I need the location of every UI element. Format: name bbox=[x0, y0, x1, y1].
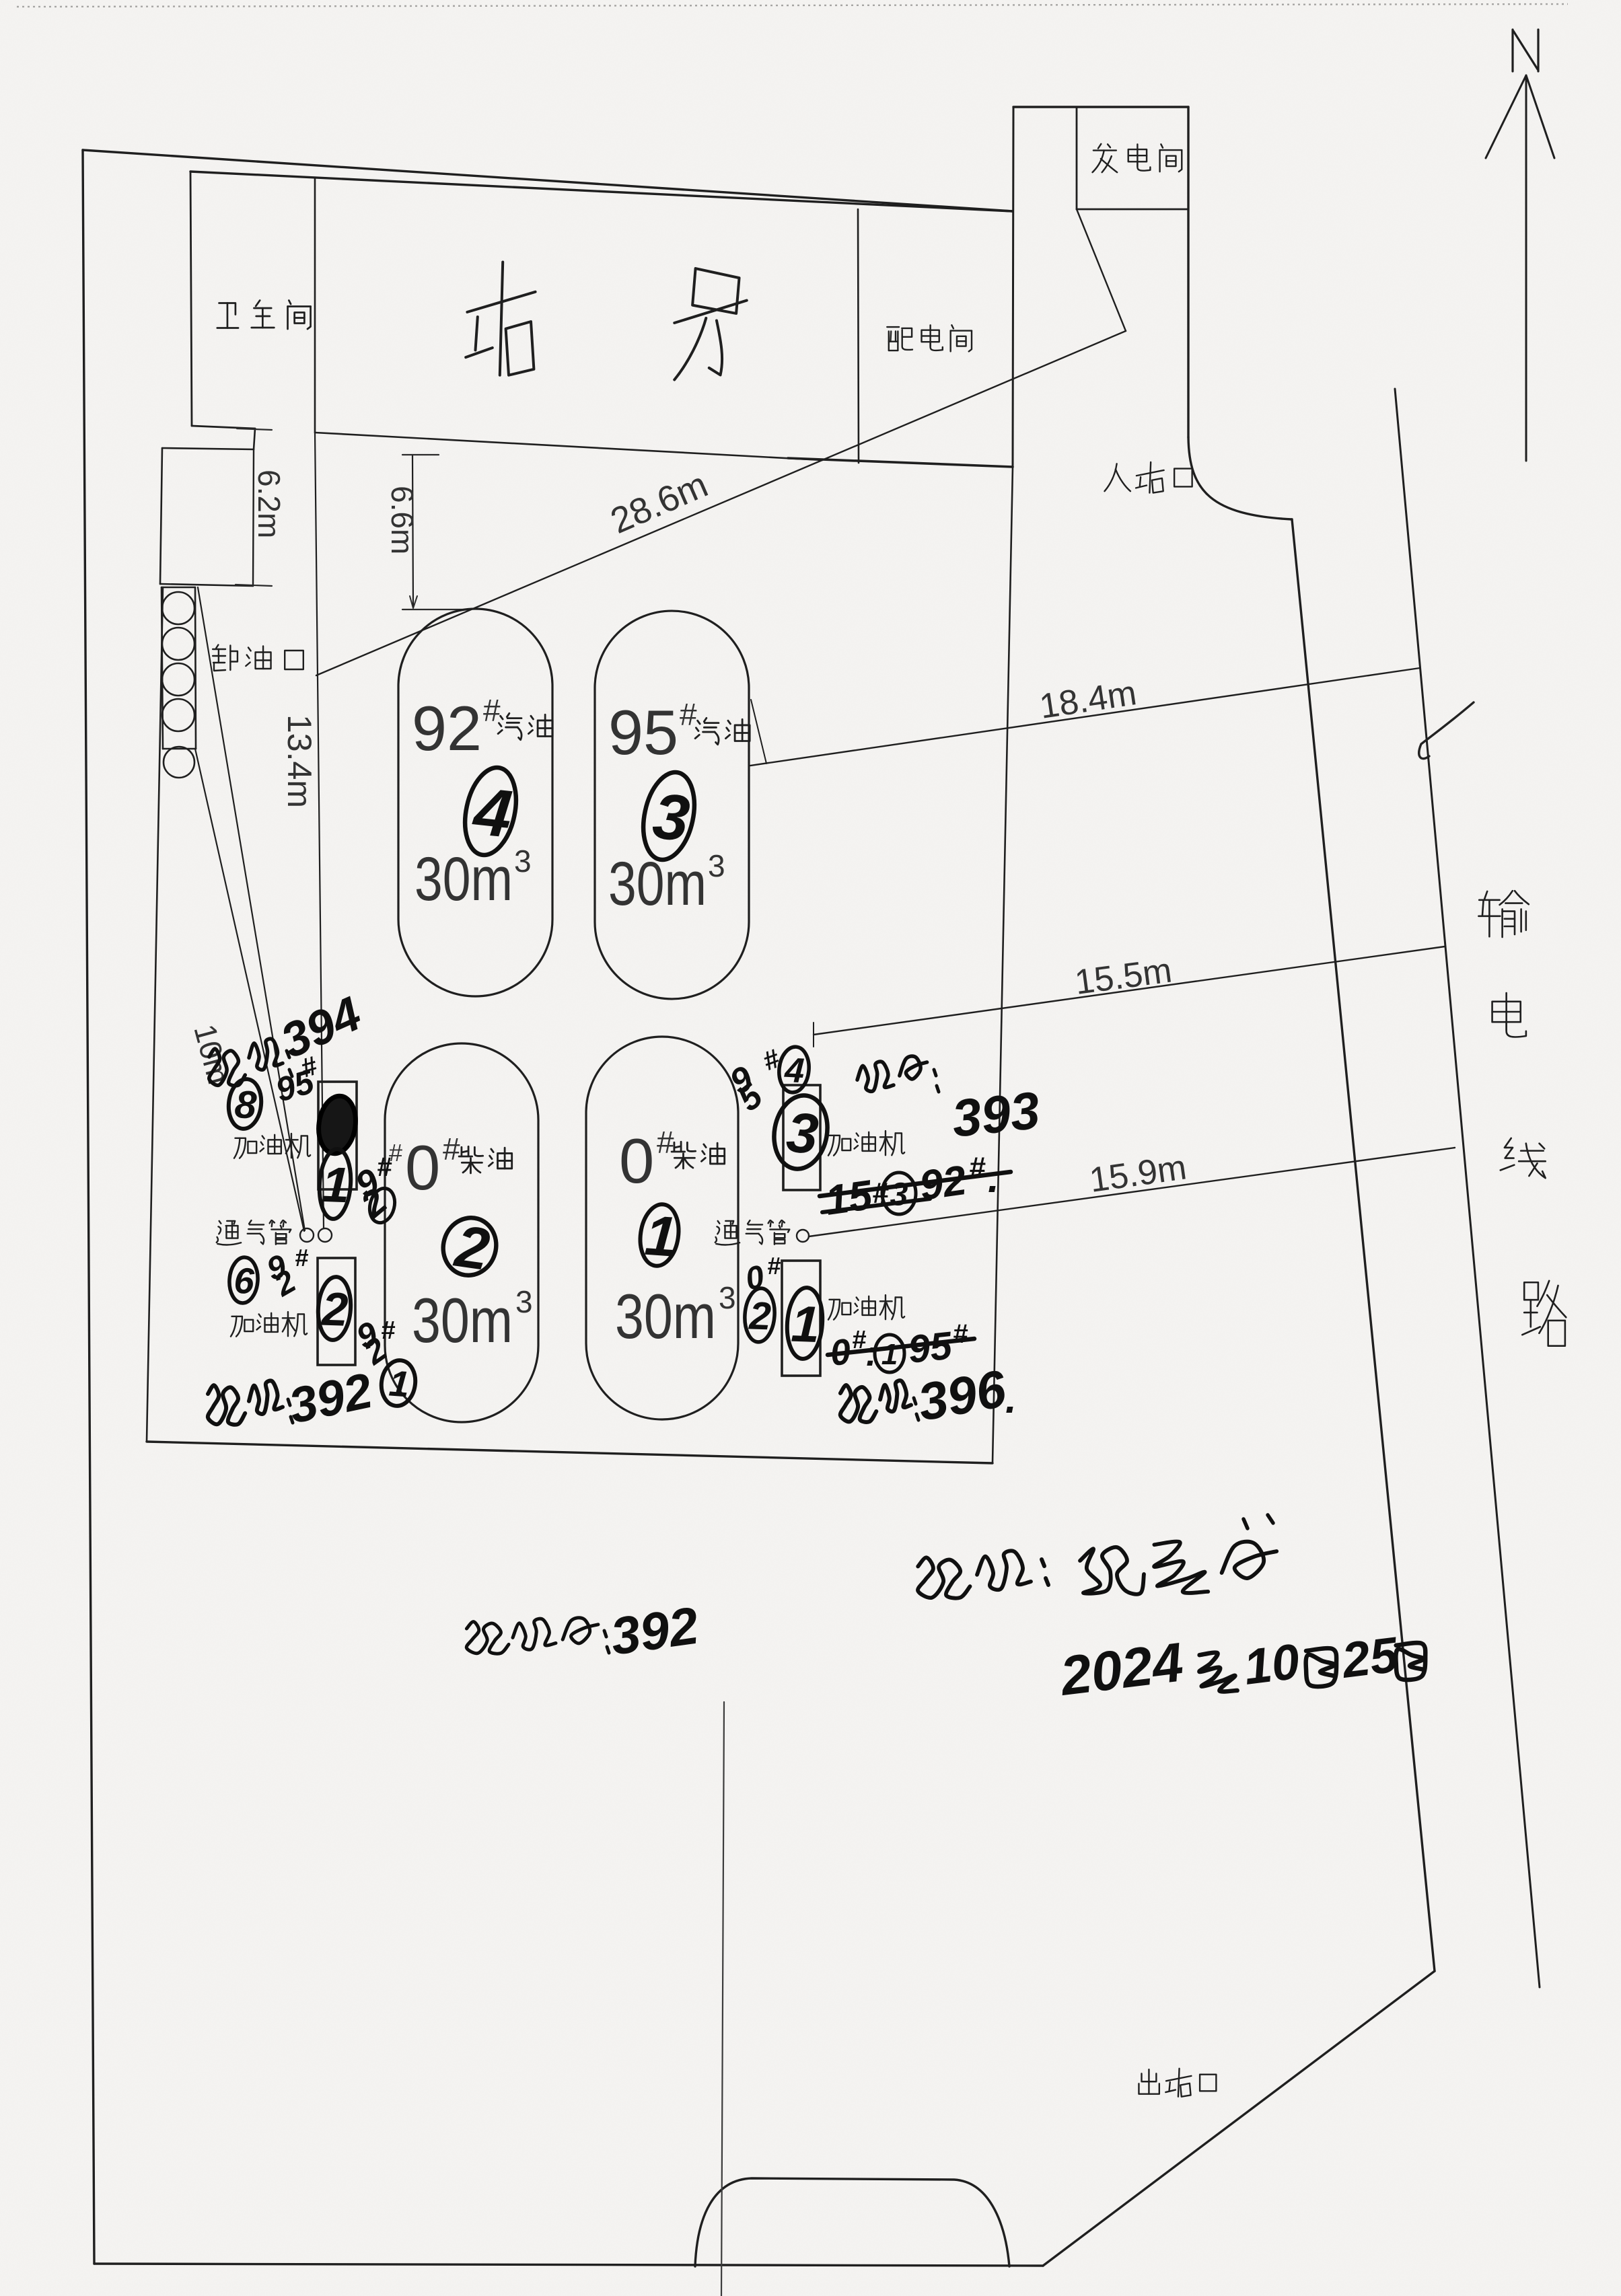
svg-text:3: 3 bbox=[649, 780, 692, 855]
svg-text:#: # bbox=[680, 697, 697, 732]
svg-text:3: 3 bbox=[515, 1284, 533, 1319]
svg-text:4: 4 bbox=[783, 1051, 805, 1090]
svg-text:3: 3 bbox=[890, 1177, 908, 1212]
svg-text:30m: 30m bbox=[412, 1285, 513, 1356]
svg-text:1: 1 bbox=[388, 1363, 410, 1405]
svg-text:.: . bbox=[988, 1156, 999, 1201]
svg-text:#: # bbox=[657, 1125, 674, 1160]
svg-text:#: # bbox=[483, 693, 501, 728]
svg-text:95: 95 bbox=[608, 697, 678, 768]
svg-text:#: # bbox=[767, 1252, 781, 1280]
svg-text:#: # bbox=[377, 1152, 392, 1182]
svg-text:393: 393 bbox=[949, 1080, 1043, 1148]
svg-text:#: # bbox=[381, 1317, 396, 1345]
svg-text:3: 3 bbox=[784, 1100, 821, 1166]
svg-text:30m: 30m bbox=[415, 845, 513, 914]
svg-text:0: 0 bbox=[405, 1132, 440, 1203]
svg-text:1: 1 bbox=[881, 1338, 898, 1371]
svg-text:.: . bbox=[1005, 1376, 1017, 1421]
svg-text:30m: 30m bbox=[615, 1281, 716, 1351]
svg-text:8: 8 bbox=[233, 1082, 258, 1127]
svg-text:6: 6 bbox=[233, 1261, 256, 1302]
svg-text:1: 1 bbox=[790, 1296, 820, 1354]
svg-text:1: 1 bbox=[321, 1156, 351, 1213]
svg-text:2: 2 bbox=[748, 1294, 772, 1338]
svg-text:#: # bbox=[443, 1132, 460, 1166]
svg-text:25: 25 bbox=[1338, 1626, 1402, 1689]
svg-text:3: 3 bbox=[719, 1280, 736, 1315]
svg-text:392: 392 bbox=[607, 1596, 702, 1666]
svg-text:0: 0 bbox=[619, 1125, 654, 1196]
svg-text:#: # bbox=[953, 1319, 968, 1349]
svg-text:1: 1 bbox=[643, 1203, 678, 1269]
svg-text:#: # bbox=[295, 1244, 308, 1271]
svg-text:3: 3 bbox=[514, 844, 532, 879]
svg-text:2: 2 bbox=[320, 1282, 349, 1335]
svg-text:6.6m: 6.6m bbox=[385, 486, 420, 554]
svg-text:10: 10 bbox=[1241, 1633, 1303, 1695]
svg-text:6.2m: 6.2m bbox=[252, 470, 287, 538]
svg-text:92: 92 bbox=[412, 693, 482, 764]
svg-text:15: 15 bbox=[822, 1172, 875, 1224]
svg-text:3: 3 bbox=[708, 848, 725, 883]
svg-text:13.4m: 13.4m bbox=[281, 714, 318, 808]
